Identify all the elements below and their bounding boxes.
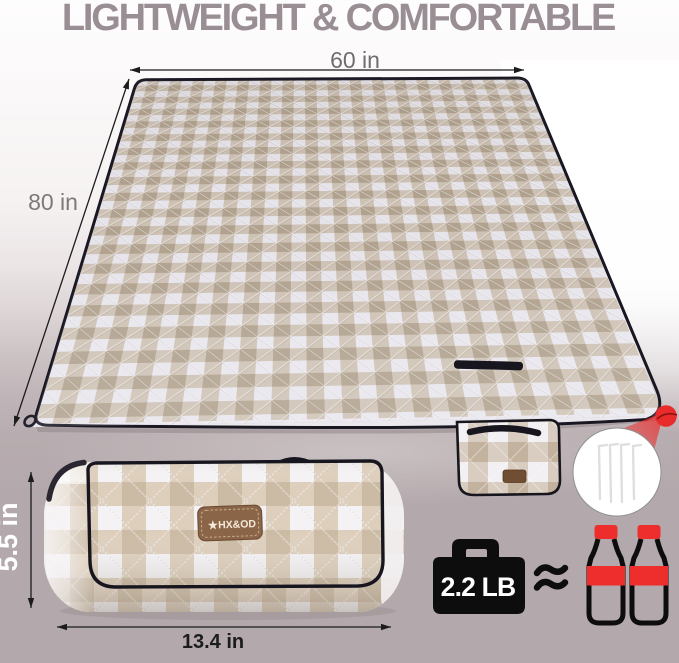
svg-text:13.4 in: 13.4 in <box>182 631 244 653</box>
svg-text:LIGHTWEIGHT & COMFORTABLE: LIGHTWEIGHT & COMFORTABLE <box>62 0 615 39</box>
svg-text:5.5 in: 5.5 in <box>0 502 23 571</box>
svg-text:HX&OD: HX&OD <box>218 518 257 531</box>
svg-text:★: ★ <box>207 517 219 532</box>
svg-text:2.2 LB: 2.2 LB <box>441 572 516 602</box>
svg-text:80 in: 80 in <box>28 189 78 215</box>
svg-text:60 in: 60 in <box>330 47 380 73</box>
